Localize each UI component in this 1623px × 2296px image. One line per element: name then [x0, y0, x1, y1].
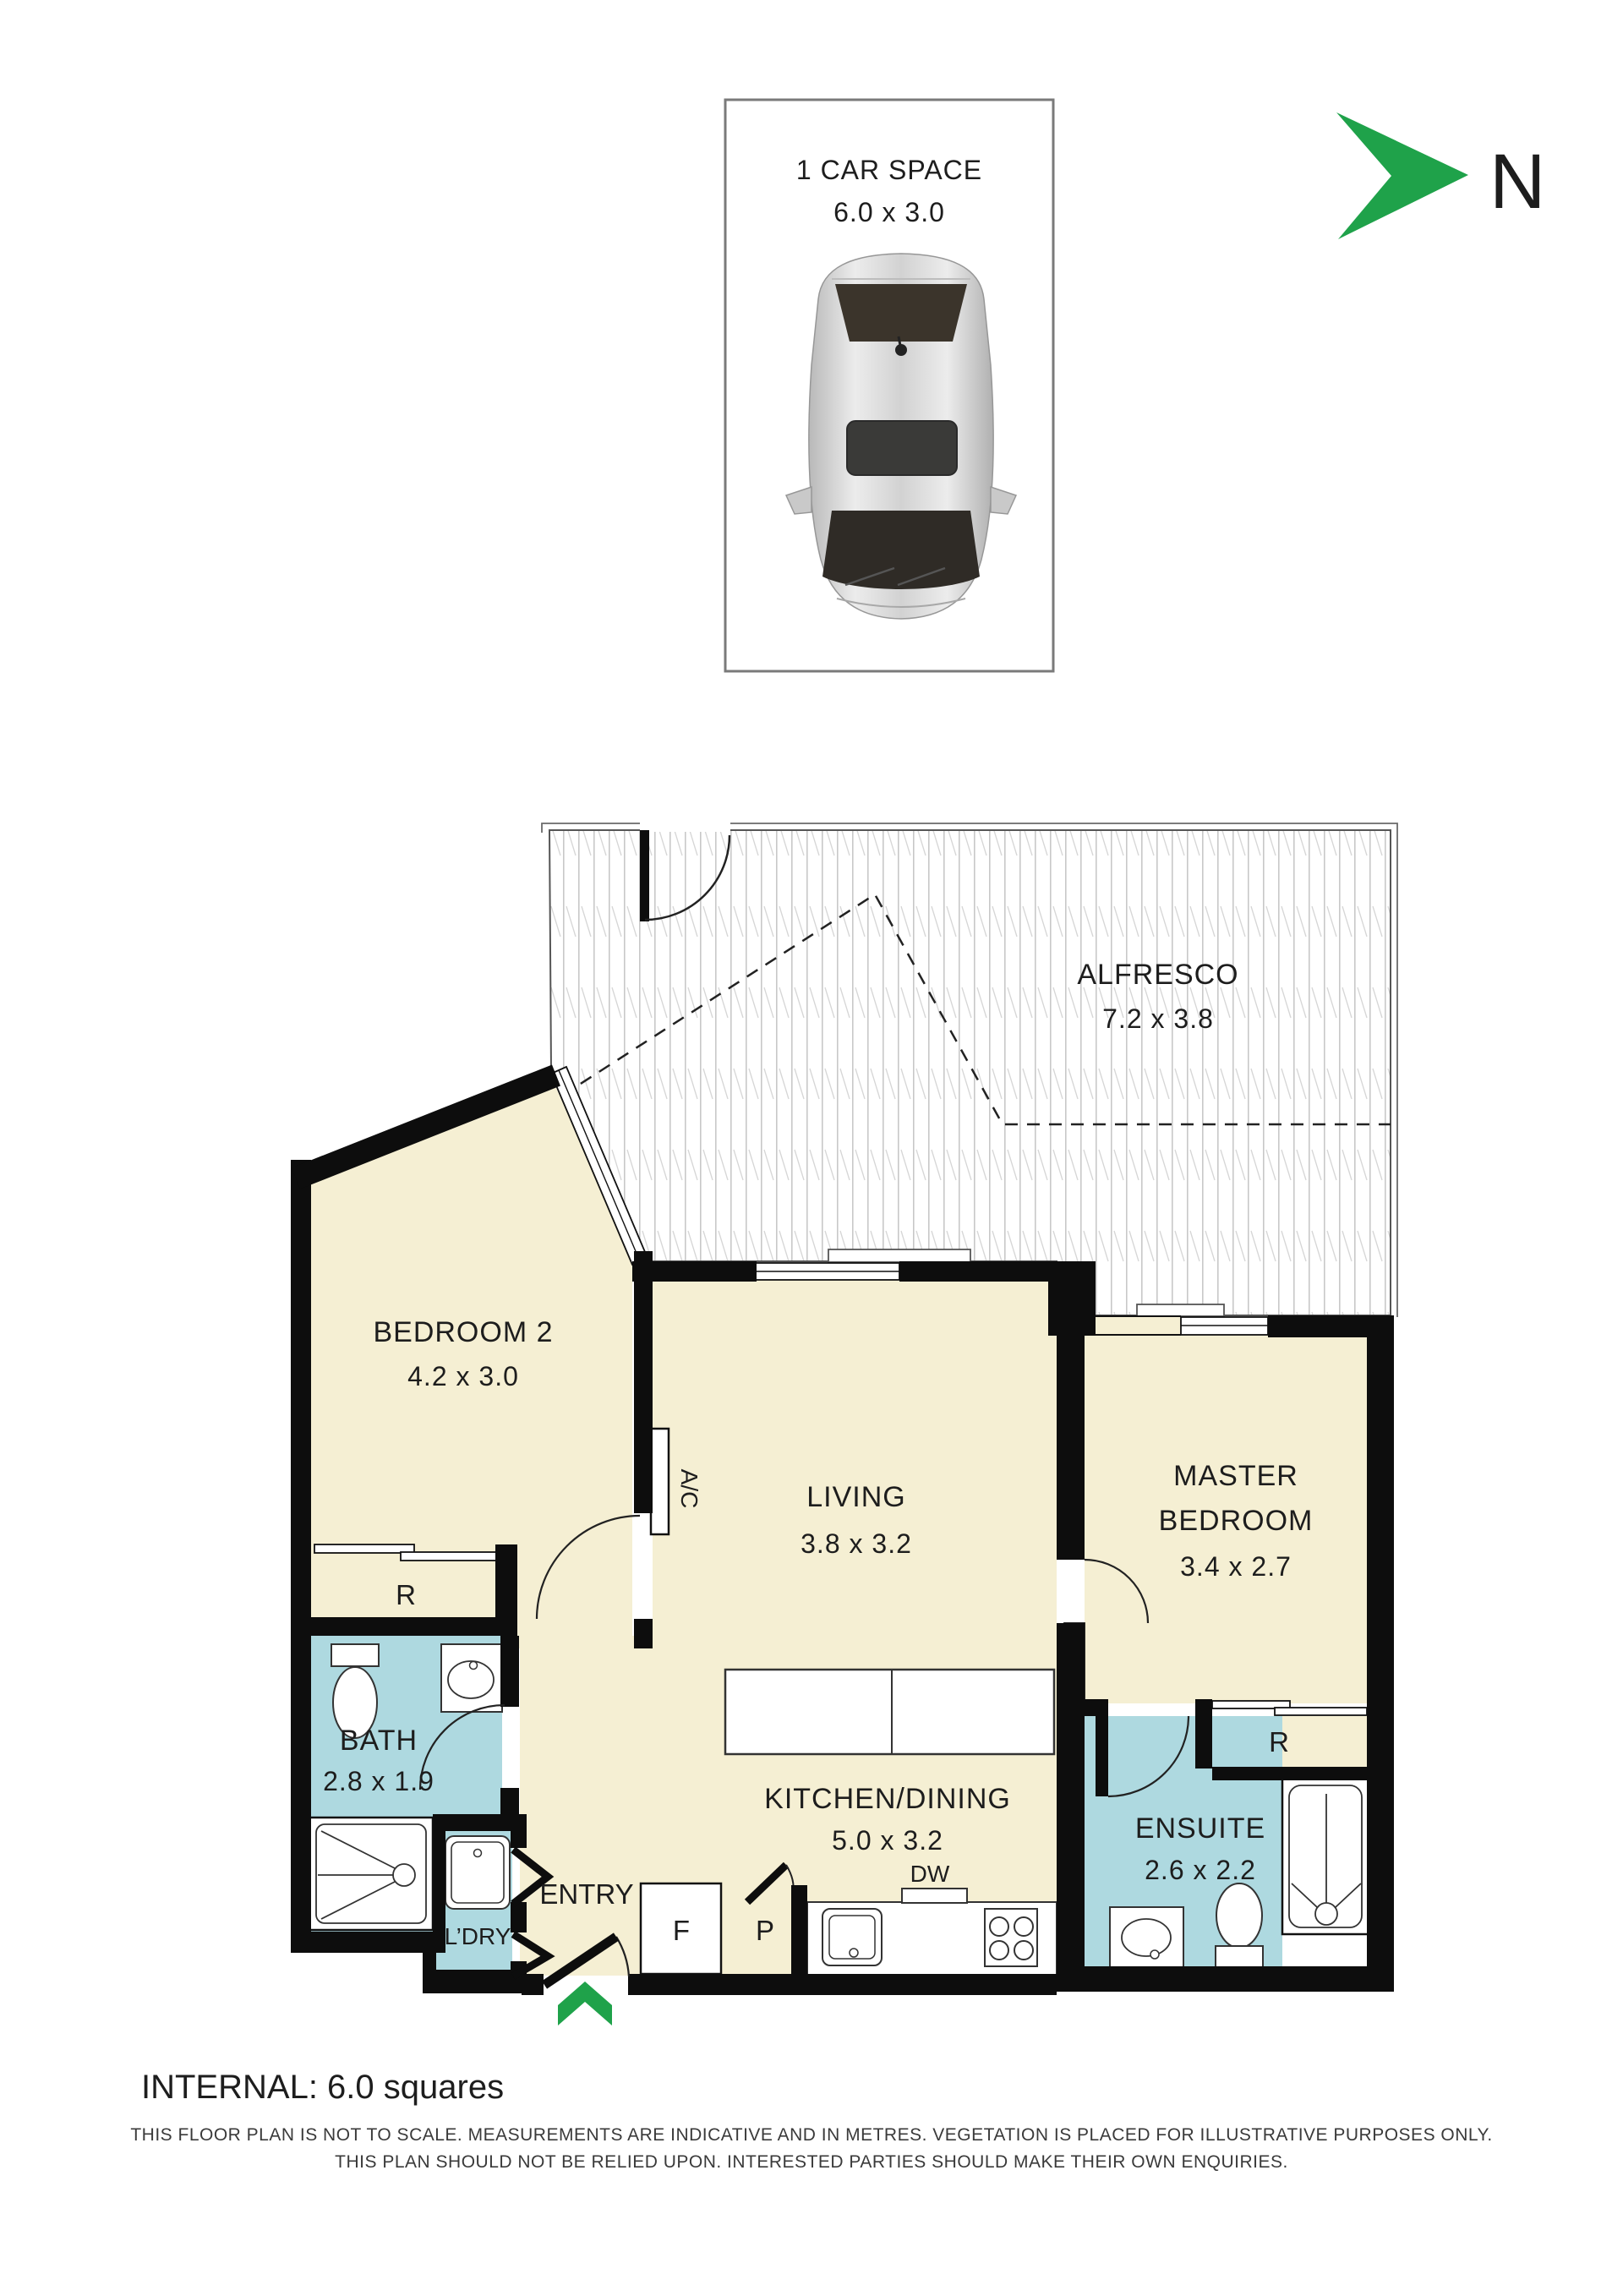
- master-label-line1: MASTER: [1173, 1460, 1298, 1492]
- entry-hall-floor: [520, 1636, 655, 1976]
- bath-shower-icon: [309, 1818, 433, 1930]
- alfresco-door-leaf: [640, 830, 649, 921]
- pantry-jamb: [791, 1885, 807, 1974]
- cooktop-icon: [985, 1909, 1037, 1966]
- north-label: N: [1489, 139, 1545, 225]
- floor-plan-canvas: 1 CAR SPACE 6.0 x 3.0 N: [0, 0, 1623, 2296]
- ensuite-door-leaf: [1096, 1716, 1108, 1796]
- kitchen-island-bench: [725, 1670, 1054, 1754]
- ensuite-toilet-icon: [1216, 1883, 1263, 1968]
- entry-arrow-icon: [558, 1982, 612, 2025]
- laundry-tub-icon: [445, 1836, 510, 1909]
- car-space-box: 1 CAR SPACE 6.0 x 3.0: [725, 100, 1053, 671]
- internal-area-text: INTERNAL: 6.0 squares: [141, 2069, 504, 2106]
- disclaimer-line2: THIS PLAN SHOULD NOT BE RELIED UPON. INT…: [335, 2152, 1288, 2172]
- ensuite-label: ENSUITE: [1135, 1812, 1265, 1845]
- master-dims: 3.4 x 2.7: [1180, 1551, 1292, 1582]
- ensuite-shower-icon: [1282, 1779, 1369, 1934]
- alfresco-dims: 7.2 x 3.8: [1102, 1003, 1214, 1034]
- car-space-dims: 6.0 x 3.0: [833, 197, 945, 227]
- kitchen-label: KITCHEN/DINING: [764, 1783, 1011, 1815]
- kitchen-sink-icon: [822, 1909, 882, 1965]
- bath-vanity-icon: [441, 1644, 502, 1712]
- kitchen-dims: 5.0 x 3.2: [832, 1825, 943, 1856]
- ensuite-vanity-icon: [1110, 1907, 1183, 1973]
- footer: INTERNAL: 6.0 squares THIS FLOOR PLAN IS…: [130, 2069, 1492, 2172]
- aircon-label: A/C: [676, 1469, 702, 1509]
- pantry-label: P: [756, 1915, 774, 1946]
- dishwasher-label: DW: [910, 1861, 950, 1887]
- bedroom2-label: BEDROOM 2: [373, 1316, 553, 1348]
- living-dims: 3.8 x 3.2: [801, 1528, 912, 1559]
- alfresco-door-opening: [640, 822, 730, 832]
- bedroom2-robe-label: R: [396, 1579, 416, 1610]
- aircon-unit: [651, 1429, 669, 1534]
- dishwasher: [902, 1889, 967, 1903]
- disclaimer-line1: THIS FLOOR PLAN IS NOT TO SCALE. MEASURE…: [130, 2125, 1492, 2145]
- bath-dims: 2.8 x 1.9: [323, 1766, 434, 1796]
- ensuite-dims: 2.6 x 2.2: [1145, 1855, 1256, 1885]
- alfresco-deck: [542, 822, 1397, 1317]
- living-kitchen-floor: [653, 1280, 1057, 1976]
- alfresco-label: ALFRESCO: [1077, 959, 1238, 991]
- car-space-title: 1 CAR SPACE: [796, 155, 982, 185]
- north-arrow-icon: [1336, 112, 1468, 239]
- living-label: LIVING: [806, 1481, 905, 1513]
- laundry-label: L’DRY: [445, 1923, 511, 1949]
- bath-label: BATH: [340, 1725, 418, 1757]
- master-robe-label: R: [1269, 1726, 1289, 1758]
- entry-label: ENTRY: [539, 1878, 633, 1910]
- deck-surface: [549, 830, 1391, 1315]
- floor-plan-page: 1 CAR SPACE 6.0 x 3.0 N: [0, 0, 1623, 2296]
- master-label-line2: BEDROOM: [1159, 1505, 1314, 1537]
- fridge-label: F: [673, 1915, 690, 1946]
- bedroom2-dims: 4.2 x 3.0: [407, 1361, 519, 1391]
- north-indicator: N: [1336, 112, 1545, 239]
